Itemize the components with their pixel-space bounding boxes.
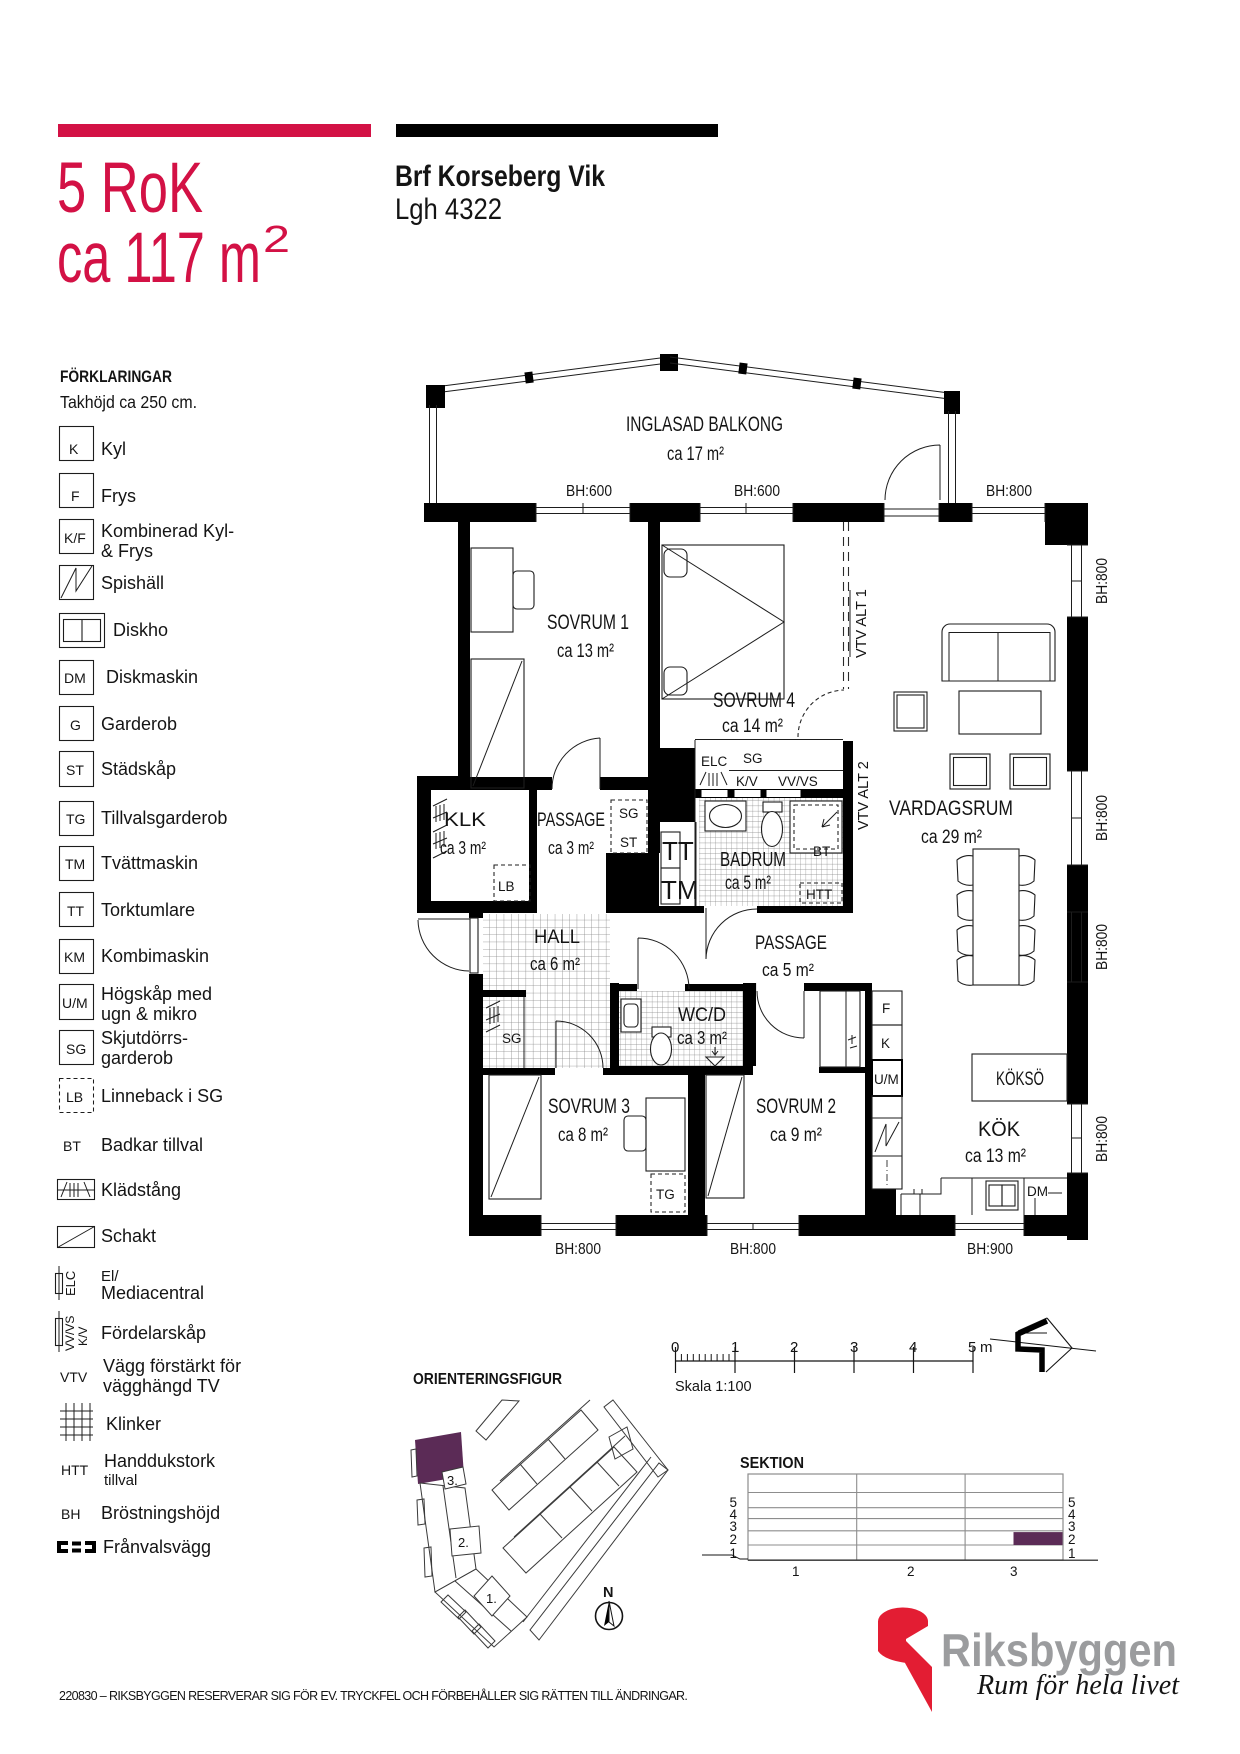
svg-text:K/F: K/F xyxy=(64,530,86,546)
svg-text:PASSAGE: PASSAGE xyxy=(755,933,827,954)
svg-text:BH:900: BH:900 xyxy=(967,1241,1013,1258)
svg-text:LB: LB xyxy=(498,879,515,894)
svg-text:m: m xyxy=(980,1339,993,1356)
svg-text:VTV ALT 2: VTV ALT 2 xyxy=(856,761,872,830)
svg-text:BT: BT xyxy=(63,1138,81,1154)
svg-text:PASSAGE: PASSAGE xyxy=(537,810,605,831)
svg-text:2: 2 xyxy=(790,1339,798,1356)
svg-text:garderob: garderob xyxy=(101,1048,173,1068)
svg-text:BH:800: BH:800 xyxy=(555,1241,601,1258)
svg-text:ugn & mikro: ugn & mikro xyxy=(101,1004,197,1024)
svg-text:1: 1 xyxy=(1068,1546,1076,1561)
svg-text:WC/D: WC/D xyxy=(678,1005,726,1026)
svg-text:TT: TT xyxy=(662,836,694,866)
svg-text:BH: BH xyxy=(61,1506,80,1522)
svg-text:tillval: tillval xyxy=(104,1472,137,1489)
svg-text:BH:800: BH:800 xyxy=(1094,924,1111,970)
svg-text:Städskåp: Städskåp xyxy=(101,759,176,779)
svg-text:SOVRUM 2: SOVRUM 2 xyxy=(756,1095,836,1118)
svg-text:BH:800: BH:800 xyxy=(986,483,1032,500)
svg-text:Linneback i SG: Linneback i SG xyxy=(101,1086,223,1106)
svg-text:Rum för hela livet: Rum för hela livet xyxy=(976,1670,1180,1701)
svg-text:ca 29 m²: ca 29 m² xyxy=(921,827,982,848)
svg-text:5: 5 xyxy=(968,1339,976,1356)
svg-text:2: 2 xyxy=(907,1564,915,1579)
svg-text:3.: 3. xyxy=(447,1473,458,1488)
svg-text:G: G xyxy=(70,717,81,733)
svg-text:ca 9 m²: ca 9 m² xyxy=(770,1125,822,1146)
svg-text:U/M: U/M xyxy=(874,1072,899,1087)
svg-text:VV/VS: VV/VS xyxy=(778,774,818,789)
svg-text:BT: BT xyxy=(813,844,830,859)
svg-text:vägghängd TV: vägghängd TV xyxy=(103,1376,220,1396)
svg-text:ST: ST xyxy=(66,762,84,778)
svg-text:N: N xyxy=(603,1585,613,1601)
svg-text:3: 3 xyxy=(850,1339,858,1356)
svg-text:Frys: Frys xyxy=(101,486,136,506)
svg-text:BADRUM: BADRUM xyxy=(720,849,786,871)
svg-text:Skala 1:100: Skala 1:100 xyxy=(675,1379,752,1395)
svg-text:Schakt: Schakt xyxy=(101,1226,156,1246)
svg-text:DM: DM xyxy=(64,670,86,686)
svg-text:3: 3 xyxy=(1010,1564,1018,1579)
svg-text:TT: TT xyxy=(67,903,85,919)
svg-text:SG: SG xyxy=(66,1041,86,1057)
svg-text:ca 8 m²: ca 8 m² xyxy=(558,1125,608,1146)
svg-text:Kyl: Kyl xyxy=(101,439,126,459)
svg-text:K: K xyxy=(881,1036,890,1051)
svg-text:ca 5 m²: ca 5 m² xyxy=(762,960,814,980)
svg-text:ca 17 m²: ca 17 m² xyxy=(667,444,724,465)
svg-text:ca 3 m²: ca 3 m² xyxy=(548,838,594,858)
svg-text:KÖKSÖ: KÖKSÖ xyxy=(996,1069,1044,1090)
svg-text:ca 13 m²: ca 13 m² xyxy=(965,1146,1026,1167)
svg-text:DM: DM xyxy=(1027,1184,1048,1199)
svg-text:BH:800: BH:800 xyxy=(730,1241,776,1258)
svg-text:Högskåp med: Högskåp med xyxy=(101,984,212,1004)
svg-text:& Frys: & Frys xyxy=(101,541,153,561)
svg-text:Brf Korseberg Vik: Brf Korseberg Vik xyxy=(395,160,605,193)
svg-text:K/V: K/V xyxy=(76,1327,90,1346)
svg-text:Diskho: Diskho xyxy=(113,620,168,640)
svg-text:FÖRKLARINGAR: FÖRKLARINGAR xyxy=(60,367,172,386)
svg-text:SOVRUM 1: SOVRUM 1 xyxy=(547,611,629,634)
svg-text:HTT: HTT xyxy=(61,1462,89,1478)
svg-text:U/M: U/M xyxy=(62,995,88,1011)
svg-text:HTT: HTT xyxy=(806,887,832,902)
svg-text:K/V: K/V xyxy=(736,774,758,789)
svg-text:Torktumlare: Torktumlare xyxy=(101,900,195,920)
svg-text:Klinker: Klinker xyxy=(106,1414,161,1434)
svg-text:SOVRUM 4: SOVRUM 4 xyxy=(713,689,795,712)
svg-text:SG: SG xyxy=(743,751,763,766)
svg-text:Kombimaskin: Kombimaskin xyxy=(101,946,209,966)
svg-text:1: 1 xyxy=(792,1564,800,1579)
svg-text:HALL: HALL xyxy=(534,927,580,948)
svg-text:2.: 2. xyxy=(458,1535,469,1550)
svg-text:Kombinerad Kyl-: Kombinerad Kyl- xyxy=(101,521,234,541)
svg-text:SEKTION: SEKTION xyxy=(740,1455,804,1472)
svg-text:SG: SG xyxy=(502,1031,522,1046)
svg-text:SG: SG xyxy=(619,806,639,821)
svg-text:220830 – RIKSBYGGEN RESERVERAR: 220830 – RIKSBYGGEN RESERVERAR SIG FÖR E… xyxy=(59,1688,689,1703)
svg-text:ELC: ELC xyxy=(63,1271,78,1296)
svg-text:F: F xyxy=(71,488,80,504)
svg-text:Tillvalsgarderob: Tillvalsgarderob xyxy=(101,808,227,828)
svg-text:Vägg förstärkt för: Vägg förstärkt för xyxy=(103,1356,241,1376)
svg-text:KM: KM xyxy=(64,949,85,965)
svg-text:ca 3 m²: ca 3 m² xyxy=(440,838,486,858)
svg-text:Bröstningshöjd: Bröstningshöjd xyxy=(101,1503,220,1523)
svg-text:ca 3 m²: ca 3 m² xyxy=(677,1028,727,1048)
svg-text:Mediacentral: Mediacentral xyxy=(101,1283,204,1303)
svg-text:INGLASAD BALKONG: INGLASAD BALKONG xyxy=(626,413,783,436)
svg-text:SOVRUM 3: SOVRUM 3 xyxy=(548,1095,630,1118)
svg-text:Badkar tillval: Badkar tillval xyxy=(101,1135,203,1155)
svg-text:Riksbyggen: Riksbyggen xyxy=(941,1624,1177,1676)
svg-text:4: 4 xyxy=(909,1339,917,1356)
svg-text:ST: ST xyxy=(620,835,637,850)
svg-text:Diskmaskin: Diskmaskin xyxy=(106,667,198,687)
svg-text:BH:800: BH:800 xyxy=(1094,558,1111,604)
svg-text:ca 14 m²: ca 14 m² xyxy=(722,716,783,737)
svg-text:ELC: ELC xyxy=(701,754,728,769)
svg-text:VV/VS: VV/VS xyxy=(63,1316,77,1351)
svg-text:Lgh 4322: Lgh 4322 xyxy=(395,193,502,226)
svg-text:Frånvalsvägg: Frånvalsvägg xyxy=(103,1537,211,1557)
svg-text:1.: 1. xyxy=(486,1591,497,1606)
svg-text:Skjutdörrs-: Skjutdörrs- xyxy=(101,1028,188,1048)
svg-text:K: K xyxy=(69,441,79,457)
svg-text:LB: LB xyxy=(66,1089,83,1105)
svg-text:BH:600: BH:600 xyxy=(566,483,612,500)
svg-text:5 RoK: 5 RoK xyxy=(57,149,203,228)
svg-text:Klädstång: Klädstång xyxy=(101,1180,181,1200)
svg-text:2: 2 xyxy=(729,1532,737,1547)
svg-text:VTV: VTV xyxy=(60,1369,88,1385)
svg-text:Takhöjd ca 250 cm.: Takhöjd ca 250 cm. xyxy=(60,392,197,412)
svg-text:ca 117 m: ca 117 m xyxy=(57,219,261,298)
svg-text:Garderob: Garderob xyxy=(101,714,177,734)
svg-text:1: 1 xyxy=(731,1339,739,1356)
svg-text:Handdukstork: Handdukstork xyxy=(104,1451,216,1471)
svg-text:TM: TM xyxy=(661,875,699,905)
svg-text:ca 6 m²: ca 6 m² xyxy=(530,954,580,974)
svg-text:F: F xyxy=(882,1001,890,1016)
svg-text:2: 2 xyxy=(263,219,290,261)
svg-text:BH:600: BH:600 xyxy=(734,483,780,500)
svg-text:TM: TM xyxy=(65,856,85,872)
svg-text:TG: TG xyxy=(656,1187,675,1202)
svg-text:Spishäll: Spishäll xyxy=(101,573,164,593)
svg-text:ORIENTERINGSFIGUR: ORIENTERINGSFIGUR xyxy=(413,1371,562,1388)
svg-text:Tvättmaskin: Tvättmaskin xyxy=(101,853,198,873)
svg-text:TG: TG xyxy=(66,811,85,827)
svg-text:1: 1 xyxy=(729,1546,737,1561)
svg-text:0: 0 xyxy=(671,1339,679,1356)
svg-text:2: 2 xyxy=(1068,1532,1076,1547)
svg-text:VARDAGSRUM: VARDAGSRUM xyxy=(889,797,1013,820)
svg-text:BH:800: BH:800 xyxy=(1094,795,1111,841)
svg-text:ca 5 m²: ca 5 m² xyxy=(725,873,771,894)
svg-text:KÖK: KÖK xyxy=(978,1118,1020,1141)
svg-text:BH:800: BH:800 xyxy=(1094,1116,1111,1162)
svg-text:Fördelarskåp: Fördelarskåp xyxy=(101,1323,206,1343)
svg-text:ca 13 m²: ca 13 m² xyxy=(557,641,614,662)
svg-text:KLK: KLK xyxy=(444,810,486,831)
svg-text:VTV ALT 1: VTV ALT 1 xyxy=(854,589,870,658)
